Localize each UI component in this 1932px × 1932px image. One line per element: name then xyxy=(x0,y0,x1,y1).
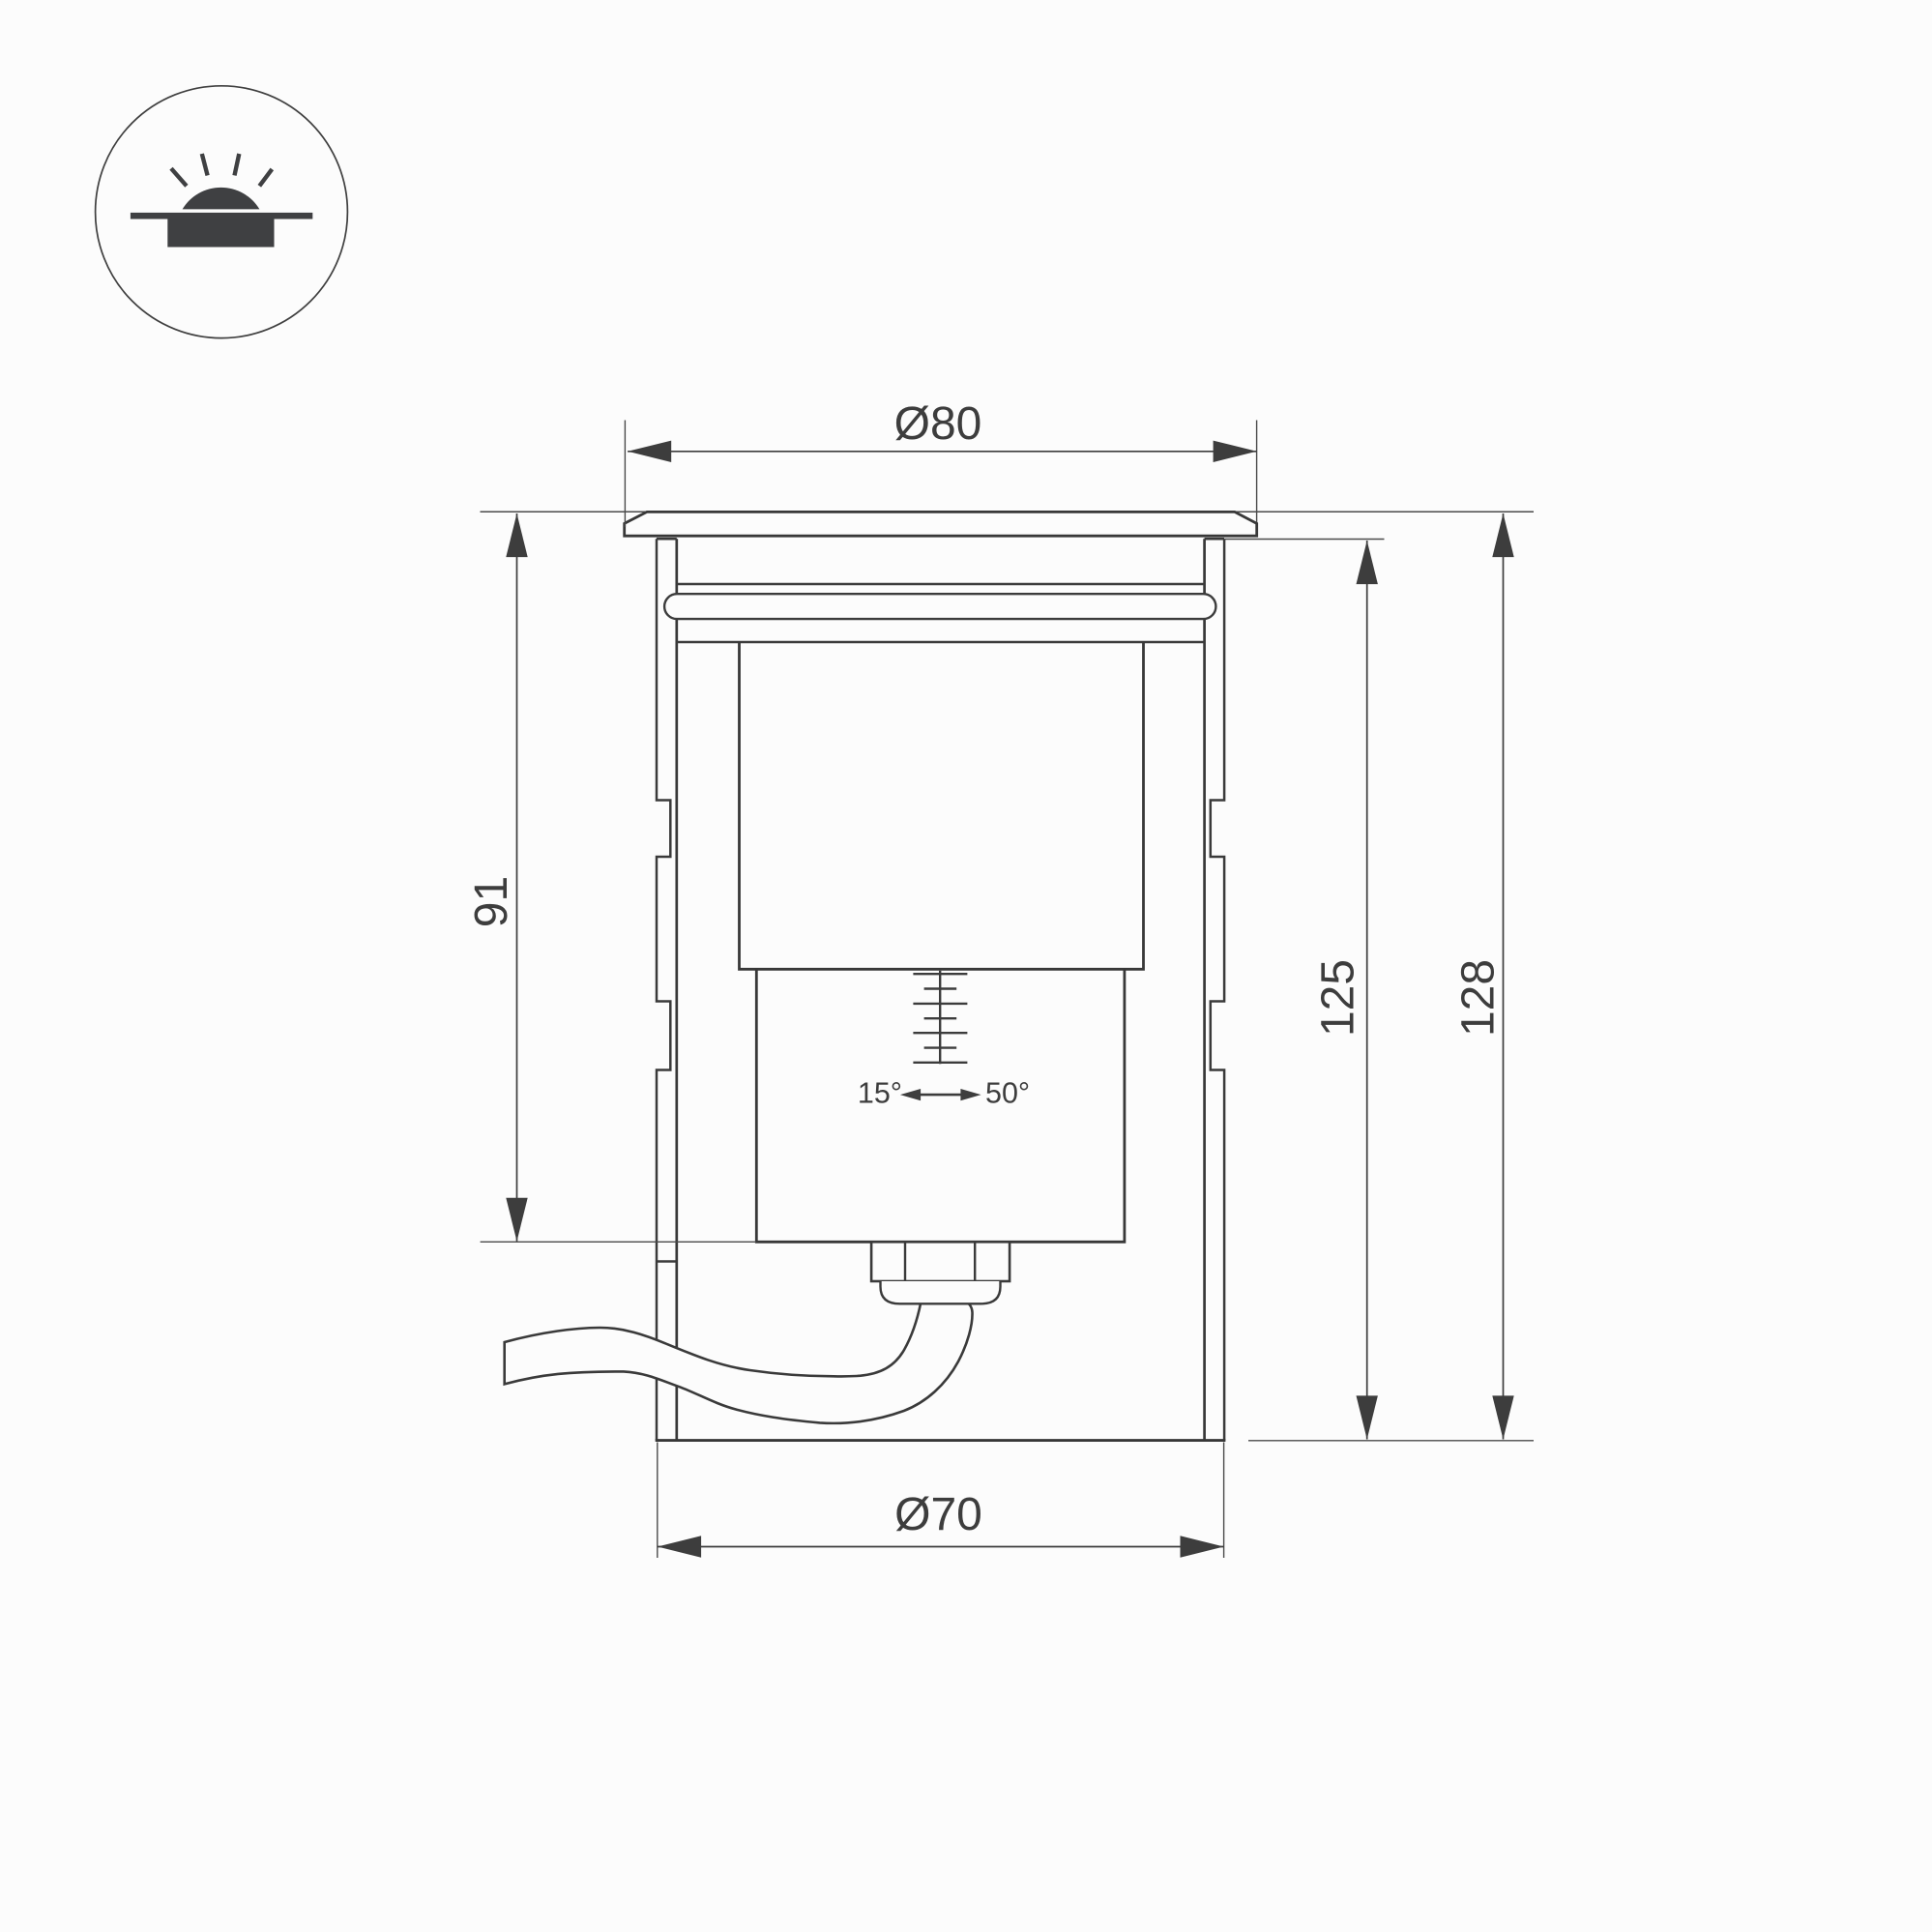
svg-text:91: 91 xyxy=(466,876,517,927)
svg-text:128: 128 xyxy=(1453,959,1505,1037)
svg-text:Ø70: Ø70 xyxy=(894,1489,982,1540)
svg-text:Ø80: Ø80 xyxy=(894,398,982,450)
svg-text:125: 125 xyxy=(1312,959,1363,1037)
svg-text:50°: 50° xyxy=(985,1077,1030,1110)
svg-text:15°: 15° xyxy=(858,1077,902,1110)
